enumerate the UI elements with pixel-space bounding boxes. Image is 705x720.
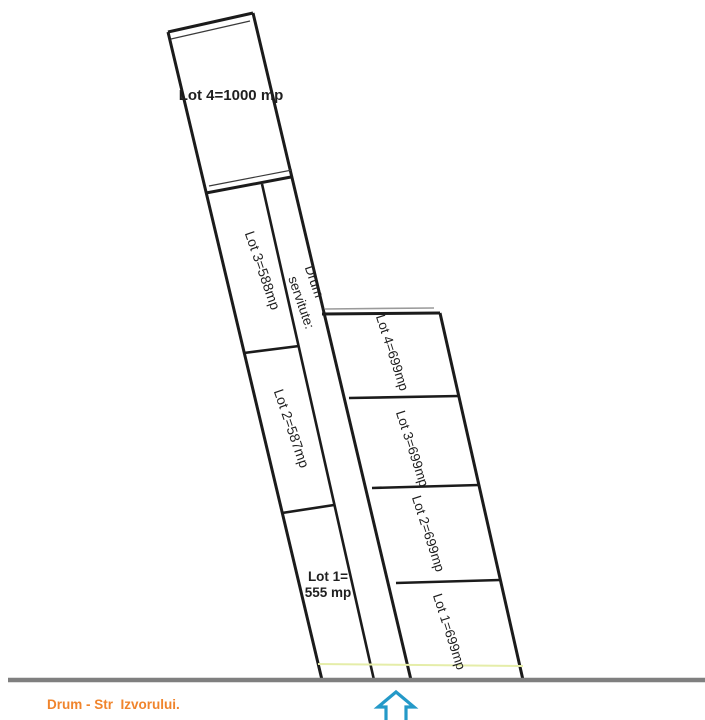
lot1-left-area-label-line1: Lot 1= [308, 569, 348, 584]
right-lot2-lot1-divider [396, 580, 500, 583]
lot1-right-area-label: Lot 1=699mp [430, 592, 469, 672]
parcel-sketch-canvas: Lot 4=1000 mp Lot 3=588mp Drum servitute… [0, 0, 705, 720]
left-strip-west-boundary [168, 32, 322, 680]
right-strip-top-inner-line [325, 308, 434, 309]
lot2-left-area-label: Lot 2=587mp [271, 387, 313, 470]
right-lot4-lot3-divider [349, 396, 459, 398]
lot1-left-area-label-line2: 555 mp [305, 585, 352, 600]
access-up-arrow-icon [378, 692, 414, 720]
front-boundary-yellow-line [318, 664, 523, 666]
lot4-left-area-label: Lot 4=1000 mp [179, 87, 284, 104]
street-name-label: Drum - Str Izvorului. [47, 697, 180, 712]
lot2-lot1-divider [282, 505, 334, 513]
lot3-right-area-label: Lot 3=699mp [393, 409, 432, 489]
drum-servitute-west-boundary [262, 184, 374, 680]
lot4-bottom-boundary [206, 177, 291, 193]
parcel-plan-page: Lot 4=1000 mp Lot 3=588mp Drum servitute… [0, 0, 705, 720]
lot3-lot2-divider [244, 346, 299, 353]
left-strip-lot4-top-boundary [168, 13, 253, 32]
lot3-left-area-label: Lot 3=588mp [242, 229, 284, 312]
lot4-right-area-label: Lot 4=699mp [373, 313, 412, 393]
lot2-right-area-label: Lot 2=699mp [409, 494, 448, 574]
